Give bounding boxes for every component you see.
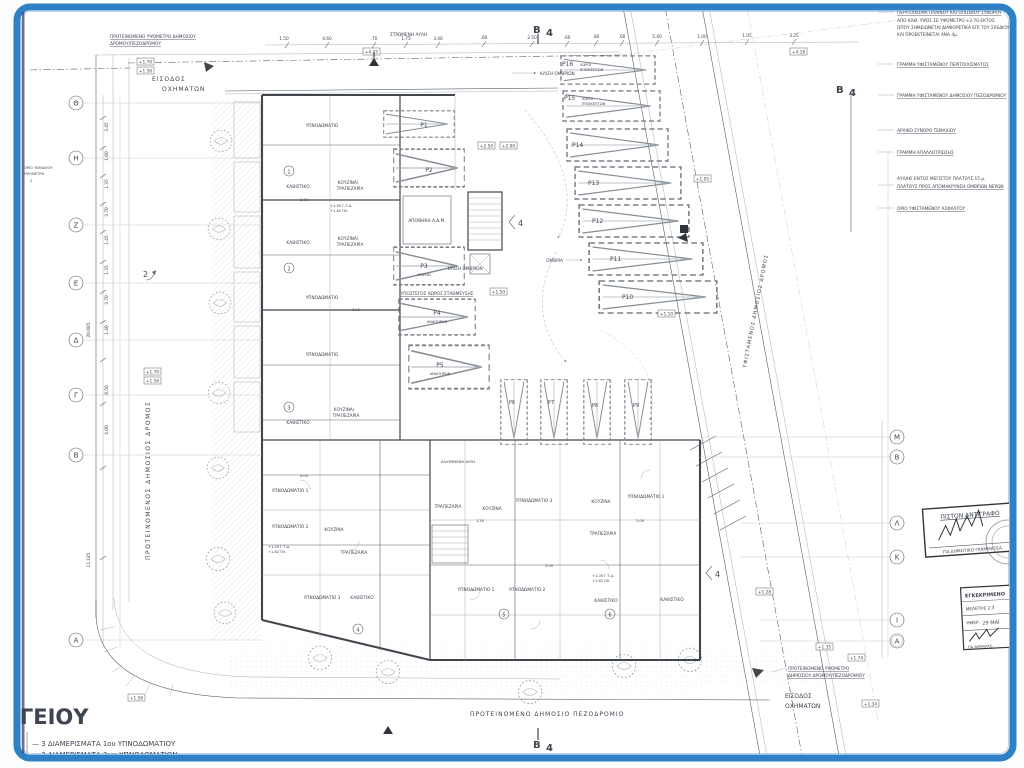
svg-text:ΚΟΥΖΙΝΑ: ΚΟΥΖΙΝΑ (591, 499, 610, 505)
svg-text:ΥΠΟΣΤΕΓΟΣ ΧΩΡΟΣ ΣΤΑΘΜΕΥΣΗΣ: ΥΠΟΣΤΕΓΟΣ ΧΩΡΟΣ ΣΤΑΘΜΕΥΣΗΣ (400, 291, 474, 297)
svg-text:+1.56: +1.56 (146, 378, 159, 384)
svg-text:P5: P5 (436, 362, 444, 369)
svg-text:3.70: 3.70 (300, 198, 309, 202)
svg-text:ΚΑΘΙΣΤΙΚΟ: ΚΑΘΙΣΤΙΚΟ (286, 184, 310, 190)
svg-text:ΥΠΝΟΔΩΜΑΤΙΟ 1: ΥΠΝΟΔΩΜΑΤΙΟ 1 (627, 494, 665, 500)
svg-text:P10: P10 (622, 294, 633, 301)
svg-text:4: 4 (518, 219, 523, 228)
scanned-plan-page: { "meta": {"document_kind": "architectur… (0, 0, 1024, 768)
svg-text:+2.50: +2.50 (480, 143, 493, 149)
svg-text:5.40: 5.40 (652, 34, 662, 40)
svg-text:P8: P8 (592, 403, 598, 409)
svg-text:4: 4 (546, 28, 553, 39)
svg-text:P6: P6 (509, 400, 515, 406)
svg-text:ΤΡΑΠΕΖΑΡΙΑ: ΤΡΑΠΕΖΑΡΙΑ (589, 531, 617, 537)
svg-text:P7: P7 (548, 400, 554, 406)
svg-text:4.60: 4.60 (322, 36, 332, 42)
svg-text:ΑΠΟΘΗΚΗ Α.Δ.Μ.: ΑΠΟΘΗΚΗ Α.Δ.Μ. (408, 218, 445, 224)
svg-text:1.35: 1.35 (104, 179, 110, 189)
svg-text:+1.05 Γ.Τ.Δ.: +1.05 Γ.Τ.Δ. (268, 545, 290, 549)
svg-text:1.35: 1.35 (104, 265, 110, 275)
svg-text:Θ: Θ (73, 100, 79, 108)
svg-text:3: 3 (287, 405, 290, 411)
svg-text:.60: .60 (619, 34, 626, 40)
svg-text:2: 2 (287, 266, 290, 272)
svg-text:Β: Β (836, 85, 844, 96)
svg-text:3.70: 3.70 (104, 295, 110, 305)
svg-text:+1.70: +1.70 (139, 59, 152, 65)
svg-text:Κ: Κ (895, 554, 900, 562)
svg-text:ΥΠΝΟΔΩΜΑΤΙΟ 1: ΥΠΝΟΔΩΜΑΤΙΟ 1 (457, 587, 495, 593)
yard-label: ΣΤΡΩΜΕΝΗ ΑΥΛΗ (390, 32, 427, 38)
svg-text:ΧΩΡΟΙ: ΧΩΡΟΙ (580, 63, 591, 67)
svg-text:+1.70: +1.70 (146, 369, 159, 375)
svg-text:P14: P14 (572, 142, 583, 149)
svg-text:+1.05 Γ.Τ.Δ.: +1.05 Γ.Τ.Δ. (592, 574, 614, 578)
svg-text:ΚΟΥΖΙΝΑ/: ΚΟΥΖΙΝΑ/ (338, 180, 359, 186)
svg-text:ΜΩΡΩΝ: ΜΩΡΩΝ (417, 273, 431, 277)
svg-text:ΚΑΙ ΠΡΟΕΚΤΕΙΝΕΤΑΙ ΑΝΑ 4μ.: ΚΑΙ ΠΡΟΕΚΤΕΙΝΕΤΑΙ ΑΝΑ 4μ. (897, 32, 958, 38)
svg-text:P13: P13 (588, 180, 599, 187)
svg-text:1.50: 1.50 (279, 36, 289, 42)
svg-text:1.40: 1.40 (104, 325, 110, 335)
svg-text:P16: P16 (562, 61, 573, 68)
svg-text:ΕΠΙΣΚΕΠΤΩΝ: ΕΠΙΣΚΕΠΤΩΝ (580, 68, 604, 72)
svg-text:+1.10: +1.10 (660, 311, 673, 317)
svg-text:Β: Β (533, 740, 541, 751)
svg-text:1.60: 1.60 (104, 151, 110, 161)
scan-edge-shadow (22, 12, 25, 753)
svg-text:1.45: 1.45 (104, 235, 110, 245)
svg-text:+1.05 Γ.Τ.Δ.: +1.05 Γ.Τ.Δ. (330, 204, 352, 208)
svg-text:ΠΡΟΤΕΙΝΟΜΕΝΟ ΔΗΜΟΣΙΟ ΠΕΖΟΔΡΟΜΙ: ΠΡΟΤΕΙΝΟΜΕΝΟ ΔΗΜΟΣΙΟ ΠΕΖΟΔΡΟΜΙΟ (470, 711, 624, 718)
svg-text:P1: P1 (420, 122, 428, 129)
svg-text:20.085: 20.085 (86, 322, 92, 337)
svg-text:ΟΡΙΟ ΥΦΙΣΤΑΜΕΝΟΥ ΑΣΦΑΛΤΟΥ: ΟΡΙΟ ΥΦΙΣΤΑΜΕΝΟΥ ΑΣΦΑΛΤΟΥ (897, 206, 965, 212)
svg-text:+1.56: +1.56 (139, 68, 152, 74)
svg-text:P3: P3 (420, 263, 428, 270)
svg-text:+1.50: +1.50 (492, 289, 505, 295)
svg-text:4: 4 (546, 743, 553, 754)
svg-text:+1.82 ΠΛ.: +1.82 ΠΛ. (268, 550, 286, 554)
svg-text:P11: P11 (610, 256, 621, 263)
svg-text:3.25: 3.25 (789, 33, 799, 39)
svg-text:+1.34: +1.34 (864, 701, 877, 707)
svg-text:3.10: 3.10 (352, 308, 361, 312)
svg-text:+1.28: +1.28 (758, 589, 771, 595)
svg-text:ΔΡΟΜΟΥ/ΠΕΖΟΔΡΟΜΟΥ: ΔΡΟΜΟΥ/ΠΕΖΟΔΡΟΜΟΥ (110, 41, 161, 47)
svg-text:ΟΠΟΥ ΣΗΜΕΙΩΝΕΤΑΙ ΔΙΑΦΟΡΕΤΙΚΑ Ε: ΟΠΟΥ ΣΗΜΕΙΩΝΕΤΑΙ ΔΙΑΦΟΡΕΤΙΚΑ ΕΠΙ ΤΟΥ ΣΧΕ… (897, 25, 1010, 31)
svg-text:3.70: 3.70 (104, 207, 110, 217)
svg-text:+1.05: +1.05 (696, 176, 709, 182)
svg-text:Β: Β (74, 452, 79, 460)
svg-text:ΚΛΙΣΗ ΟΜΒΡΙΩΝ: ΚΛΙΣΗ ΟΜΒΡΙΩΝ (448, 266, 483, 272)
svg-text:ΚΑΛΥΜΜΕΝΗ ΑΥΛΗ: ΚΑΛΥΜΜΕΝΗ ΑΥΛΗ (441, 460, 476, 464)
svg-text:P15: P15 (564, 95, 575, 102)
svg-text:ΟΧΗΜΑΤΩΝ: ΟΧΗΜΑΤΩΝ (785, 703, 820, 710)
svg-text:ΤΡΑΠΕΖΑΡΙΑ: ΤΡΑΠΕΖΑΡΙΑ (336, 242, 364, 248)
svg-text:.70: .70 (371, 36, 378, 42)
svg-text:ΕΙΣΟΔΟΣ: ΕΙΣΟΔΟΣ (785, 693, 812, 700)
svg-text:Β: Β (895, 454, 900, 462)
svg-text:Ζ: Ζ (74, 222, 79, 230)
svg-text:6: 6 (608, 612, 611, 618)
svg-text:P12: P12 (592, 218, 603, 225)
site-plan-svg: P1 P2 P3 ΜΩΡΩΝ P4 ΑΝΑΠΗΡΩΝ P5 ΑΝΑΠΗΡΩΝ P… (0, 0, 1024, 768)
svg-text:Γ: Γ (74, 392, 78, 400)
stamp-certified-copy: ΠΙΣΤΟΝ ΑΝΤΙΓΡΑΦΟ ΓΙΑ ΔΗΜΟΤΙΚΟ ΓΡΑΜΜΑΤΕΑ (922, 503, 1019, 557)
svg-text:4: 4 (849, 88, 856, 99)
svg-text:P9: P9 (633, 403, 639, 409)
svg-text:.80: .80 (593, 34, 600, 40)
svg-text:ΠΡΟΤΕΙΝΟΜΕΝΟ ΥΨΟΜΕΤΡΟ ΔΗΜΟΣΙΟΥ: ΠΡΟΤΕΙΝΟΜΕΝΟ ΥΨΟΜΕΤΡΟ ΔΗΜΟΣΙΟΥ (110, 34, 196, 40)
svg-text:+1.82 ΠΛ.: +1.82 ΠΛ. (592, 579, 610, 583)
svg-text:ΟΡΙΟ ΤΕΜΑΧΙΟΥ: ΟΡΙΟ ΤΕΜΑΧΙΟΥ (24, 166, 53, 170)
svg-text:Α: Α (895, 638, 900, 646)
svg-text:ΥΠΝΟΔΩΜΑΤΙΟ: ΥΠΝΟΔΩΜΑΤΙΟ (305, 352, 339, 358)
svg-text:Α: Α (74, 637, 79, 645)
svg-text:ΚΑΘΙΣΤΙΚΟ: ΚΑΘΙΣΤΙΚΟ (594, 598, 618, 604)
svg-text:ΚΟΥΖΙΝΑ: ΚΟΥΖΙΝΑ (324, 527, 343, 533)
svg-text:3.45: 3.45 (104, 122, 110, 132)
svg-text:ΚΟΥΖΙΝΑ/: ΚΟΥΖΙΝΑ/ (338, 236, 359, 242)
svg-text:ΚΑΘΙΣΤΙΚΟ: ΚΑΘΙΣΤΙΚΟ (350, 595, 374, 601)
svg-text:1.05: 1.05 (742, 33, 752, 39)
svg-text:ΑΡΧΙΚΟ ΣΥΝΟΡΟ ΤΕΜΑΧΙΟΥ: ΑΡΧΙΚΟ ΣΥΝΟΡΟ ΤΕΜΑΧΙΟΥ (897, 128, 956, 134)
svg-text:2: 2 (143, 270, 148, 279)
svg-text:.60: .60 (481, 35, 488, 41)
svg-text:ΓΡΑΜΜΗ ΥΦΙΣΤΑΜΕΝΟΥ ΔΗΜΟΣΙΟΥ ΠΕ: ΓΡΑΜΜΗ ΥΦΙΣΤΑΜΕΝΟΥ ΔΗΜΟΣΙΟΥ ΠΕΖΟΔΡΟΜΙΟΥ (897, 93, 1007, 99)
svg-text:Μ: Μ (894, 434, 900, 442)
svg-text:ΥΠΝΟΔΩΜΑΤΙΟ 2: ΥΠΝΟΔΩΜΑΤΙΟ 2 (508, 587, 546, 593)
svg-text:ΓΡΑΜΜΗ ΥΦΙΣΤΑΜΕΝΟΥ ΠΕΡΙΤΟΙΧΙΣΜ: ΓΡΑΜΜΗ ΥΦΙΣΤΑΜΕΝΟΥ ΠΕΡΙΤΟΙΧΙΣΜΑΤΟΣ (897, 62, 989, 68)
svg-text:.60: .60 (564, 35, 571, 41)
svg-text:4.00: 4.00 (300, 474, 309, 478)
svg-text:1: 1 (287, 169, 290, 175)
planting-strip (212, 100, 260, 640)
svg-text:4.00: 4.00 (104, 425, 110, 435)
svg-text:ΚΛΙΣΗ ΟΜΒΡΙΩΝ: ΚΛΙΣΗ ΟΜΒΡΙΩΝ (540, 71, 575, 77)
svg-text:+1.74: +1.74 (850, 655, 863, 661)
svg-text:ΚΟΥΖΙΝΑ/: ΚΟΥΖΙΝΑ/ (334, 407, 355, 413)
legend-line-1: — 3 ΔΙΑΜΕΡΙΣΜΑΤΑ 1ου ΥΠΝΟΔΩΜΑΤΙΟΥ (32, 740, 176, 748)
svg-text:ΗΜΕΡ.: ΗΜΕΡ. (966, 620, 980, 627)
svg-text:ΑΠΟ ΚΑΘ. ΥΨΟΣ ΣΕ ΥΨΟΜΕΤΡΟ +2.7: ΑΠΟ ΚΑΘ. ΥΨΟΣ ΣΕ ΥΨΟΜΕΤΡΟ +2.70 ΕΚΤΟΣ (897, 18, 995, 24)
svg-text:ΥΠΝΟΔΩΜΑΤΙΟ 3: ΥΠΝΟΔΩΜΑΤΙΟ 3 (303, 595, 341, 601)
svg-text:Η: Η (73, 155, 78, 163)
svg-text:+2.00: +2.00 (502, 143, 515, 149)
svg-text:ΚΑΘΙΣΤΙΚΟ: ΚΑΘΙΣΤΙΚΟ (286, 240, 310, 246)
svg-text:ΤΡΑΠΕΖΑΡΙΑ: ΤΡΑΠΕΖΑΡΙΑ (336, 186, 364, 192)
svg-text:ΑΝΑΠΗΡΩΝ: ΑΝΑΠΗΡΩΝ (427, 320, 448, 324)
svg-text:ΤΡΑΠΕΖΑΡΙΑ: ΤΡΑΠΕΖΑΡΙΑ (340, 550, 368, 556)
svg-text:ΕΙΣΟΔΟΣ: ΕΙΣΟΔΟΣ (152, 76, 186, 83)
svg-text:+1.82 ΠΛ.: +1.82 ΠΛ. (330, 209, 348, 213)
svg-text:4: 4 (356, 627, 359, 633)
svg-text:3.00: 3.00 (545, 564, 554, 568)
svg-text:Ε: Ε (74, 280, 78, 288)
svg-text:+4.18: +4.18 (792, 49, 805, 55)
svg-text:1.00: 1.00 (697, 34, 707, 40)
svg-text:ΟΧΗΜΑΤΩΝ: ΟΧΗΜΑΤΩΝ (162, 86, 205, 93)
svg-text:ΚΑΘΙΣΤΙΚΟ: ΚΑΘΙΣΤΙΚΟ (286, 420, 310, 426)
svg-text:ΠΡΟΤΕΙΝΟΜΕΝΟΣ ΔΗΜΟΣΙΟΣ ΔΡΟΜΟΣ: ΠΡΟΤΕΙΝΟΜΕΝΟΣ ΔΗΜΟΣΙΟΣ ΔΡΟΜΟΣ (145, 401, 152, 560)
svg-text:ΚΑΘΙΣΤΙΚΟ: ΚΑΘΙΣΤΙΚΟ (660, 597, 684, 603)
svg-text:Ι: Ι (896, 617, 898, 625)
svg-text:ΥΨΟΜΕΤΡΑ: ΥΨΟΜΕΤΡΑ (24, 172, 45, 176)
svg-text:4: 4 (715, 570, 720, 579)
svg-text:ΓΡΑΜΜΗ ΑΠΑΛΛΟΤΡΙΩΣΗΣ: ΓΡΑΜΜΗ ΑΠΑΛΛΟΤΡΙΩΣΗΣ (897, 150, 954, 156)
svg-text:ΚΟΥΖΙΝΑ: ΚΟΥΖΙΝΑ (482, 506, 501, 512)
svg-text:ΣΤΡΩΜΕΝΗ ΑΥΛΗ: ΣΤΡΩΜΕΝΗ ΑΥΛΗ (390, 32, 427, 38)
svg-text:ΤΡΑΠΕΖΑΡΙΑ: ΤΡΑΠΕΖΑΡΙΑ (332, 413, 360, 419)
svg-text:Λ: Λ (895, 520, 900, 528)
svg-text:1.20: 1.20 (476, 519, 485, 523)
svg-text:ΑΝΑΠΗΡΩΝ: ΑΝΑΠΗΡΩΝ (430, 372, 451, 376)
svg-text:ΥΠΝΟΔΩΜΑΤΙΟ 1: ΥΠΝΟΔΩΜΑΤΙΟ 1 (271, 488, 309, 494)
svg-text:2.00: 2.00 (636, 519, 645, 523)
svg-text:29 ΜΑΪ: 29 ΜΑΪ (982, 619, 1000, 627)
svg-text:P2: P2 (425, 167, 433, 174)
svg-text:ΥΠΝΟΔΩΜΑΤΙΟ: ΥΠΝΟΔΩΜΑΤΙΟ (305, 123, 339, 129)
svg-text:+4.25: +4.25 (365, 49, 378, 55)
svg-text:+1.56: +1.56 (130, 695, 143, 701)
svg-text:ΑΥΛΑΚΙ ΕΝΤΟΣ ΜΕΓΙΣΤΟΥ ΠΛΑΤΟΥΣ: ΑΥΛΑΚΙ ΕΝΤΟΣ ΜΕΓΙΣΤΟΥ ΠΛΑΤΟΥΣ 15 μ. (897, 176, 985, 182)
svg-text:Β: Β (533, 25, 541, 36)
svg-text:5: 5 (502, 612, 505, 618)
svg-text:2: 2 (30, 179, 32, 183)
svg-text:ΕΠΙΣΚΕΠΤΩΝ: ΕΠΙΣΚΕΠΤΩΝ (582, 102, 606, 106)
svg-text:ΟΜΒΡΙΑ: ΟΜΒΡΙΑ (546, 258, 563, 264)
svg-text:ΥΠΝΟΔΩΜΑΤΙΟ 2: ΥΠΝΟΔΩΜΑΤΙΟ 2 (271, 524, 309, 530)
svg-text:ΤΡΑΠΕΖΑΡΙΑ: ΤΡΑΠΕΖΑΡΙΑ (434, 504, 462, 510)
svg-text:Δ: Δ (74, 337, 79, 345)
svg-text:3.40: 3.40 (433, 36, 443, 42)
svg-text:11.185: 11.185 (86, 552, 92, 567)
svg-text:P4: P4 (433, 310, 441, 317)
svg-text:ΥΠΝΟΔΩΜΑΤΙΟ: ΥΠΝΟΔΩΜΑΤΙΟ (305, 295, 339, 301)
svg-text:ΥΠΝΟΔΩΜΑΤΙΟ 3: ΥΠΝΟΔΩΜΑΤΙΟ 3 (515, 498, 553, 504)
svg-text:8.50: 8.50 (104, 385, 110, 395)
svg-text:ΧΩΡΟΙ: ΧΩΡΟΙ (582, 97, 593, 101)
svg-text:ΠΛΑΤΟΥΣ ΠΡΟΣ ΑΠΟΜΑΚΡΥΝΣΗ ΟΜΒΡΙ: ΠΛΑΤΟΥΣ ΠΡΟΣ ΑΠΟΜΑΚΡΥΝΣΗ ΟΜΒΡΙΩΝ ΝΕΡΩΝ (897, 184, 1004, 190)
